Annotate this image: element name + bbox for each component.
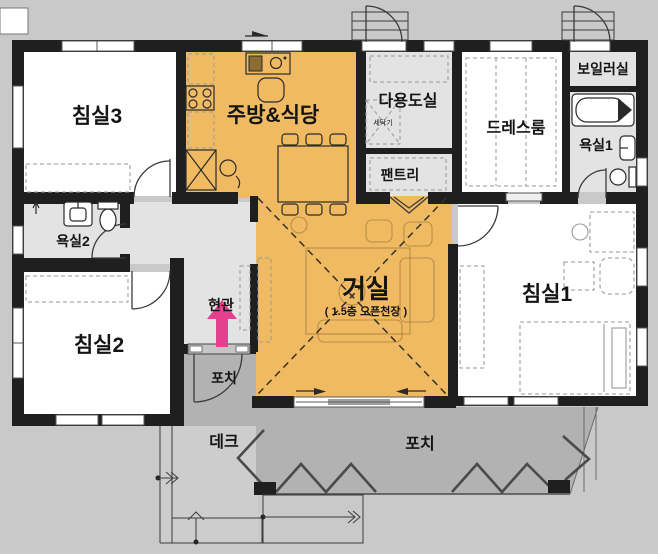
window <box>490 41 532 51</box>
label-utility: 다용도실 <box>379 92 438 110</box>
boiler-ext-door-gap <box>570 41 610 51</box>
entry-door-panel <box>236 346 248 352</box>
label-pantry: 팬트리 <box>381 167 420 183</box>
window <box>13 86 23 148</box>
label-bedroom2: 침실2 <box>74 334 124 357</box>
toilet-icon <box>610 169 626 185</box>
toilet-icon <box>100 209 116 231</box>
toilet-tank <box>98 202 118 209</box>
porch-post <box>548 480 570 493</box>
door-dressroom-bedroom1 <box>506 193 542 201</box>
exterior-unit-box <box>0 8 28 34</box>
label-bath1: 욕실1 <box>579 137 613 153</box>
window <box>56 415 98 425</box>
label-bedroom1: 침실1 <box>522 283 573 306</box>
label-boiler: 보일러실 <box>577 61 629 77</box>
label-bath2: 욕실2 <box>56 233 90 249</box>
label-porch-small: 포치 <box>211 370 237 386</box>
label-living-sub: ( 1.5층 오픈천장 ) <box>325 304 408 318</box>
utility-ext-door-gap <box>362 41 406 51</box>
porch-post <box>254 482 276 495</box>
label-bedroom3: 침실3 <box>72 105 122 128</box>
toilet-tank <box>629 167 636 187</box>
window <box>464 397 508 405</box>
window <box>102 415 144 425</box>
porch-small-area <box>182 352 256 426</box>
label-entry: 현관 <box>208 297 234 313</box>
window <box>62 41 134 51</box>
label-washer: 세탁기 <box>373 118 392 127</box>
label-deck: 데크 <box>209 433 239 451</box>
window <box>424 41 454 51</box>
floor-plan: 침실3 주방&식당 다용도실 세탁기 드레스룸 보일러실 욕실1 팬트리 욕실2… <box>0 0 658 554</box>
label-dressroom: 드레스룸 <box>487 119 546 137</box>
window <box>514 397 558 405</box>
window <box>637 248 647 286</box>
label-porch-large: 포치 <box>405 435 434 453</box>
window <box>637 328 647 366</box>
entry-door-panel <box>190 346 202 352</box>
window <box>637 158 647 186</box>
label-kitchen: 주방&식당 <box>227 104 319 127</box>
window <box>13 226 23 254</box>
label-living: 거실 <box>342 274 390 304</box>
hallway <box>124 202 256 264</box>
sink-basin <box>249 56 262 71</box>
